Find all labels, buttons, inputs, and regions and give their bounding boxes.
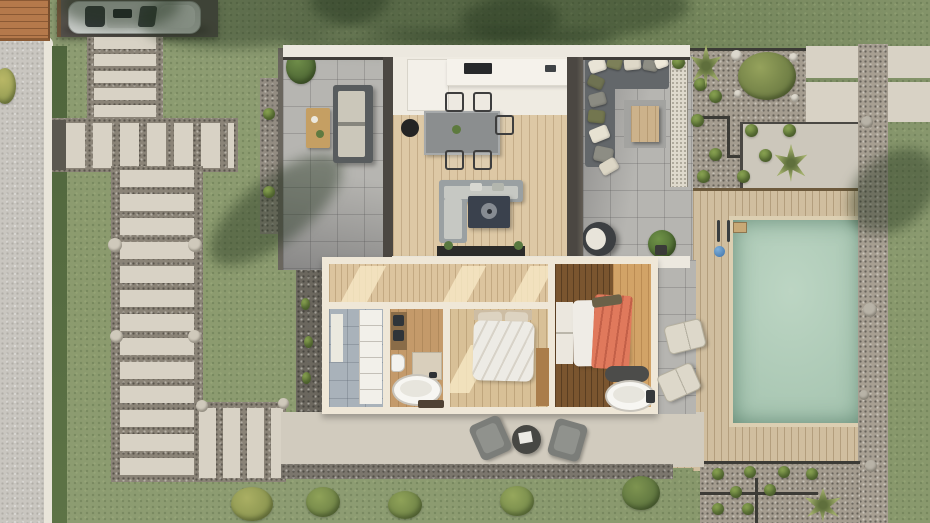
tree-shadow xyxy=(308,0,562,51)
pool-ladder-rail xyxy=(717,220,720,242)
beam-east xyxy=(567,57,583,266)
planter-pot xyxy=(655,245,667,255)
garden-edging xyxy=(700,461,860,464)
washbasin xyxy=(393,330,404,341)
path-turn-east-slabs xyxy=(199,408,283,478)
bed3-headboard xyxy=(556,302,573,364)
table-napkin xyxy=(518,431,533,444)
sofa-pillow xyxy=(470,183,482,191)
path-north-slabs xyxy=(94,37,156,124)
armchair-cushion xyxy=(553,424,581,455)
kitchen-cabinet xyxy=(407,59,449,111)
car xyxy=(68,1,201,34)
paver-terrace-east xyxy=(740,122,865,192)
outdoor-sofa-cushions xyxy=(338,91,365,157)
path-band-pad xyxy=(52,120,66,170)
washbasin xyxy=(393,315,404,326)
console-plant xyxy=(444,241,453,250)
coffee-table xyxy=(468,196,510,228)
coffee-table-decor-center xyxy=(487,209,492,214)
pool-ladder-step xyxy=(733,222,747,233)
terrace-table xyxy=(512,425,541,454)
car-windshield xyxy=(138,6,158,27)
bath-faucet xyxy=(429,372,437,378)
egg-chair-cushion xyxy=(583,226,608,252)
table-decor xyxy=(311,116,318,123)
lounge-bench-left xyxy=(585,55,615,167)
lawn-bush xyxy=(231,487,273,521)
path-south-long-slabs xyxy=(120,170,194,478)
car-rear-window xyxy=(85,6,105,27)
lawn-bush xyxy=(306,487,340,517)
armchair-cushion xyxy=(475,422,506,455)
lounge-table xyxy=(631,106,659,142)
kitchen-sink xyxy=(545,65,556,72)
cooktop xyxy=(464,63,492,74)
sofa-pillow xyxy=(492,183,504,191)
outdoor-sofa xyxy=(333,85,373,163)
tree-shadow xyxy=(458,0,691,50)
lawn-bush xyxy=(500,486,534,516)
bathtub-basin xyxy=(400,380,432,397)
wall-bedroom2-master xyxy=(548,264,555,407)
pool-float xyxy=(714,246,725,257)
dining-stool xyxy=(401,119,419,137)
wood-deck-topleft xyxy=(0,0,50,41)
table-decor xyxy=(316,130,324,138)
garden-edging xyxy=(727,116,730,158)
gravel-strip-east xyxy=(858,44,888,523)
bed2-duvet xyxy=(472,320,535,382)
toilet xyxy=(391,354,405,372)
utility-shelf xyxy=(331,314,343,362)
wall-corridor xyxy=(329,302,549,309)
utility-cabinet xyxy=(359,310,382,404)
dining-table xyxy=(424,111,500,155)
master-bathtub-basin xyxy=(613,386,645,403)
lawn-bush xyxy=(388,491,422,519)
bedroom2-bench xyxy=(536,348,549,406)
bath-tray xyxy=(646,390,655,403)
swimming-pool xyxy=(729,216,866,427)
garden-edging xyxy=(755,478,758,523)
wall-utility-bath xyxy=(383,308,390,407)
beam-west xyxy=(383,57,393,266)
gravel-bed-west xyxy=(296,264,324,416)
pool-ladder-rail xyxy=(727,220,730,242)
garden-edging xyxy=(700,492,818,495)
sofa-chaise-cushion xyxy=(444,199,462,239)
path-band-slabs xyxy=(66,123,234,168)
pebble-strip xyxy=(670,53,688,187)
patio-coffee-table xyxy=(306,108,330,148)
lawn-bush xyxy=(622,476,660,510)
gravel-strip-south xyxy=(281,464,673,479)
site-plan-rendering xyxy=(0,0,930,523)
console-plant xyxy=(514,241,523,250)
wall-bath-bedroom2 xyxy=(443,308,450,407)
car-hood xyxy=(159,5,195,28)
table-plant xyxy=(452,125,461,134)
car-sunroof xyxy=(113,9,132,18)
bath-mat xyxy=(418,400,444,408)
